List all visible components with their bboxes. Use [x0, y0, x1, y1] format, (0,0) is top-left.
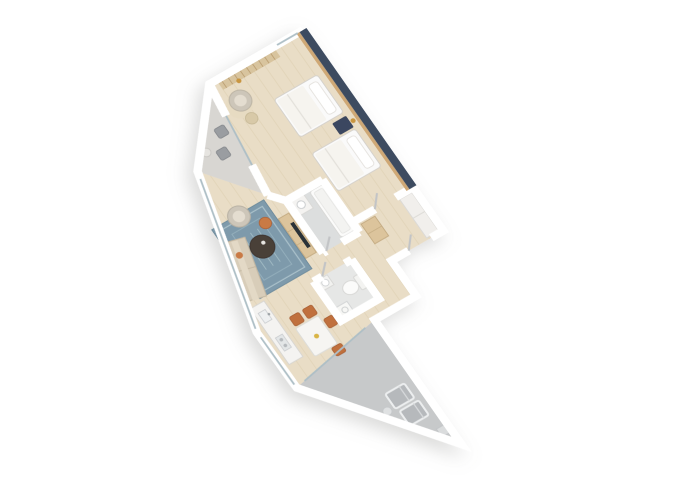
floor-plan-rendering: [0, 0, 700, 500]
apartment-3d-view: [117, 24, 562, 500]
floor-plan-page: [0, 0, 700, 500]
